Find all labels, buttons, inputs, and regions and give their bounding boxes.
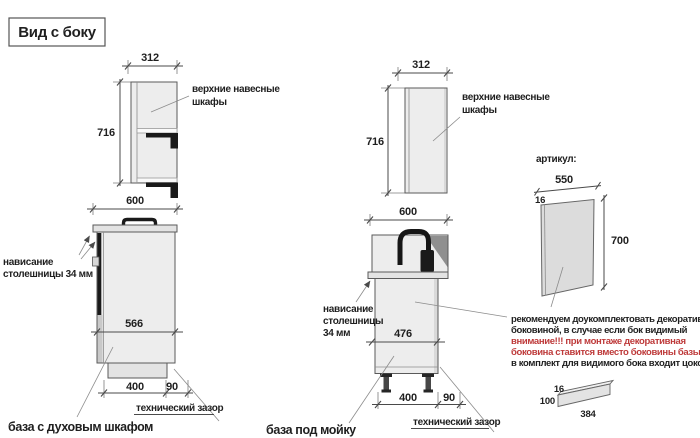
drawing-canvas: Вид с боку 312 716 верхние навесные шкаф…	[0, 0, 700, 438]
dim-width-value: 312	[141, 52, 159, 64]
side-edge	[444, 89, 447, 193]
wall-cabinet-left: 312 716 верхние навесные шкафы	[97, 52, 280, 198]
dim-height-value: 700	[611, 235, 629, 247]
title-box: Вид с боку	[9, 18, 105, 46]
leg-left	[380, 374, 392, 393]
plinth-length-value: 384	[580, 409, 596, 420]
base-cabinet-sink: 600 476 400 90	[266, 206, 507, 437]
dim-width: 312	[392, 59, 453, 81]
gap-label: технический зазор	[413, 417, 501, 428]
bottom-shelf	[137, 178, 177, 183]
overhang-arrow-1	[79, 236, 90, 255]
dim-depth-value: 600	[399, 206, 417, 218]
note-line2: боковиной, в случае если бок видимый	[511, 325, 688, 336]
overhang-label-line1: нависание	[3, 257, 54, 268]
countertop	[93, 225, 177, 232]
dim-bottom: 400 90	[372, 392, 466, 409]
door-handle-tab	[93, 257, 100, 266]
dim-gap-value: 90	[166, 381, 178, 393]
dim-bottom-value: 400	[399, 392, 417, 404]
cabinet-label-line1: верхние навесные	[462, 92, 550, 103]
caption-leader	[77, 347, 113, 417]
dim-depth-value: 600	[126, 195, 144, 207]
note-line5: в комплект для видимого бока входит цоко…	[511, 358, 700, 369]
side-edge	[434, 279, 438, 373]
plinth-height-value: 100	[540, 396, 555, 407]
note-block: рекомендуем доукомплектовать декоративно…	[511, 314, 700, 369]
side-view-drawing-page: Вид с боку 312 716 верхние навесные шкаф…	[0, 0, 700, 438]
wall-cabinet-mid: 312 716 верхние навесные шкафы	[366, 59, 550, 197]
dim-width: 550	[534, 174, 601, 196]
dim-height: 716	[366, 85, 405, 197]
base-cabinet-oven: 600 566 400 90 технический зазор база с …	[3, 195, 224, 434]
dim-height-value: 716	[97, 127, 115, 139]
note-line4-warning: боковина ставится вместо боковины базы л…	[511, 347, 700, 358]
plinth-panel: 16 100 384	[540, 381, 613, 421]
gap-label: технический зазор	[136, 403, 224, 414]
dim-width-value: 550	[555, 174, 573, 186]
overhang-label-line1: нависание	[323, 304, 374, 315]
dim-height-value: 716	[366, 136, 384, 148]
dim-inner-value: 476	[394, 328, 412, 340]
overhang-arrow	[356, 281, 370, 302]
note-line1: рекомендуем доукомплектовать декоративно…	[511, 314, 700, 325]
dim-bottom: 400 90	[98, 380, 193, 398]
overhang-label-line2: столешницы	[323, 316, 383, 327]
dim-height: 700	[601, 195, 629, 291]
caption: база с духовым шкафом	[8, 420, 153, 434]
panel-face	[541, 200, 594, 297]
overhang-label-line3: 34 мм	[323, 328, 350, 339]
panel-header: артикул:	[536, 154, 576, 165]
decorative-side-panel: артикул: 550 16 700	[534, 154, 629, 307]
bracket-bottom	[146, 183, 178, 199]
page-title: Вид с боку	[18, 24, 96, 41]
plinth	[108, 363, 167, 378]
caption: база под мойку	[266, 423, 356, 437]
shelf	[137, 129, 177, 134]
dim-bottom-value: 400	[126, 381, 144, 393]
cabinet-label-line2: шкафы	[462, 104, 497, 116]
cabinet-label-line1: верхние навесные	[192, 84, 280, 95]
dim-width-value: 312	[412, 59, 430, 71]
plinth-thickness-value: 16	[554, 384, 564, 395]
cabinet-label-line2: шкафы	[192, 96, 227, 108]
note-line3-warning: внимание!!! при монтаже декоративная	[511, 336, 686, 347]
countertop	[368, 272, 448, 279]
overhang-arrow-2	[81, 242, 95, 259]
dim-width: 312	[122, 52, 183, 74]
cabinet-body	[97, 232, 175, 363]
oven-door-strip	[98, 233, 102, 315]
dim-height: 716	[97, 79, 131, 187]
dim-depth: 600	[364, 206, 453, 226]
leg-right	[422, 374, 434, 393]
dim-gap-value: 90	[443, 392, 455, 404]
overhang-label-line2: столешницы 34 мм	[3, 269, 93, 280]
faucet-body	[421, 250, 435, 272]
dim-inner-value: 566	[125, 318, 143, 330]
dim-depth: 600	[87, 195, 183, 215]
lower-door-strip	[98, 315, 103, 363]
cabinet-body	[375, 279, 438, 374]
cabinet-body	[405, 88, 447, 193]
